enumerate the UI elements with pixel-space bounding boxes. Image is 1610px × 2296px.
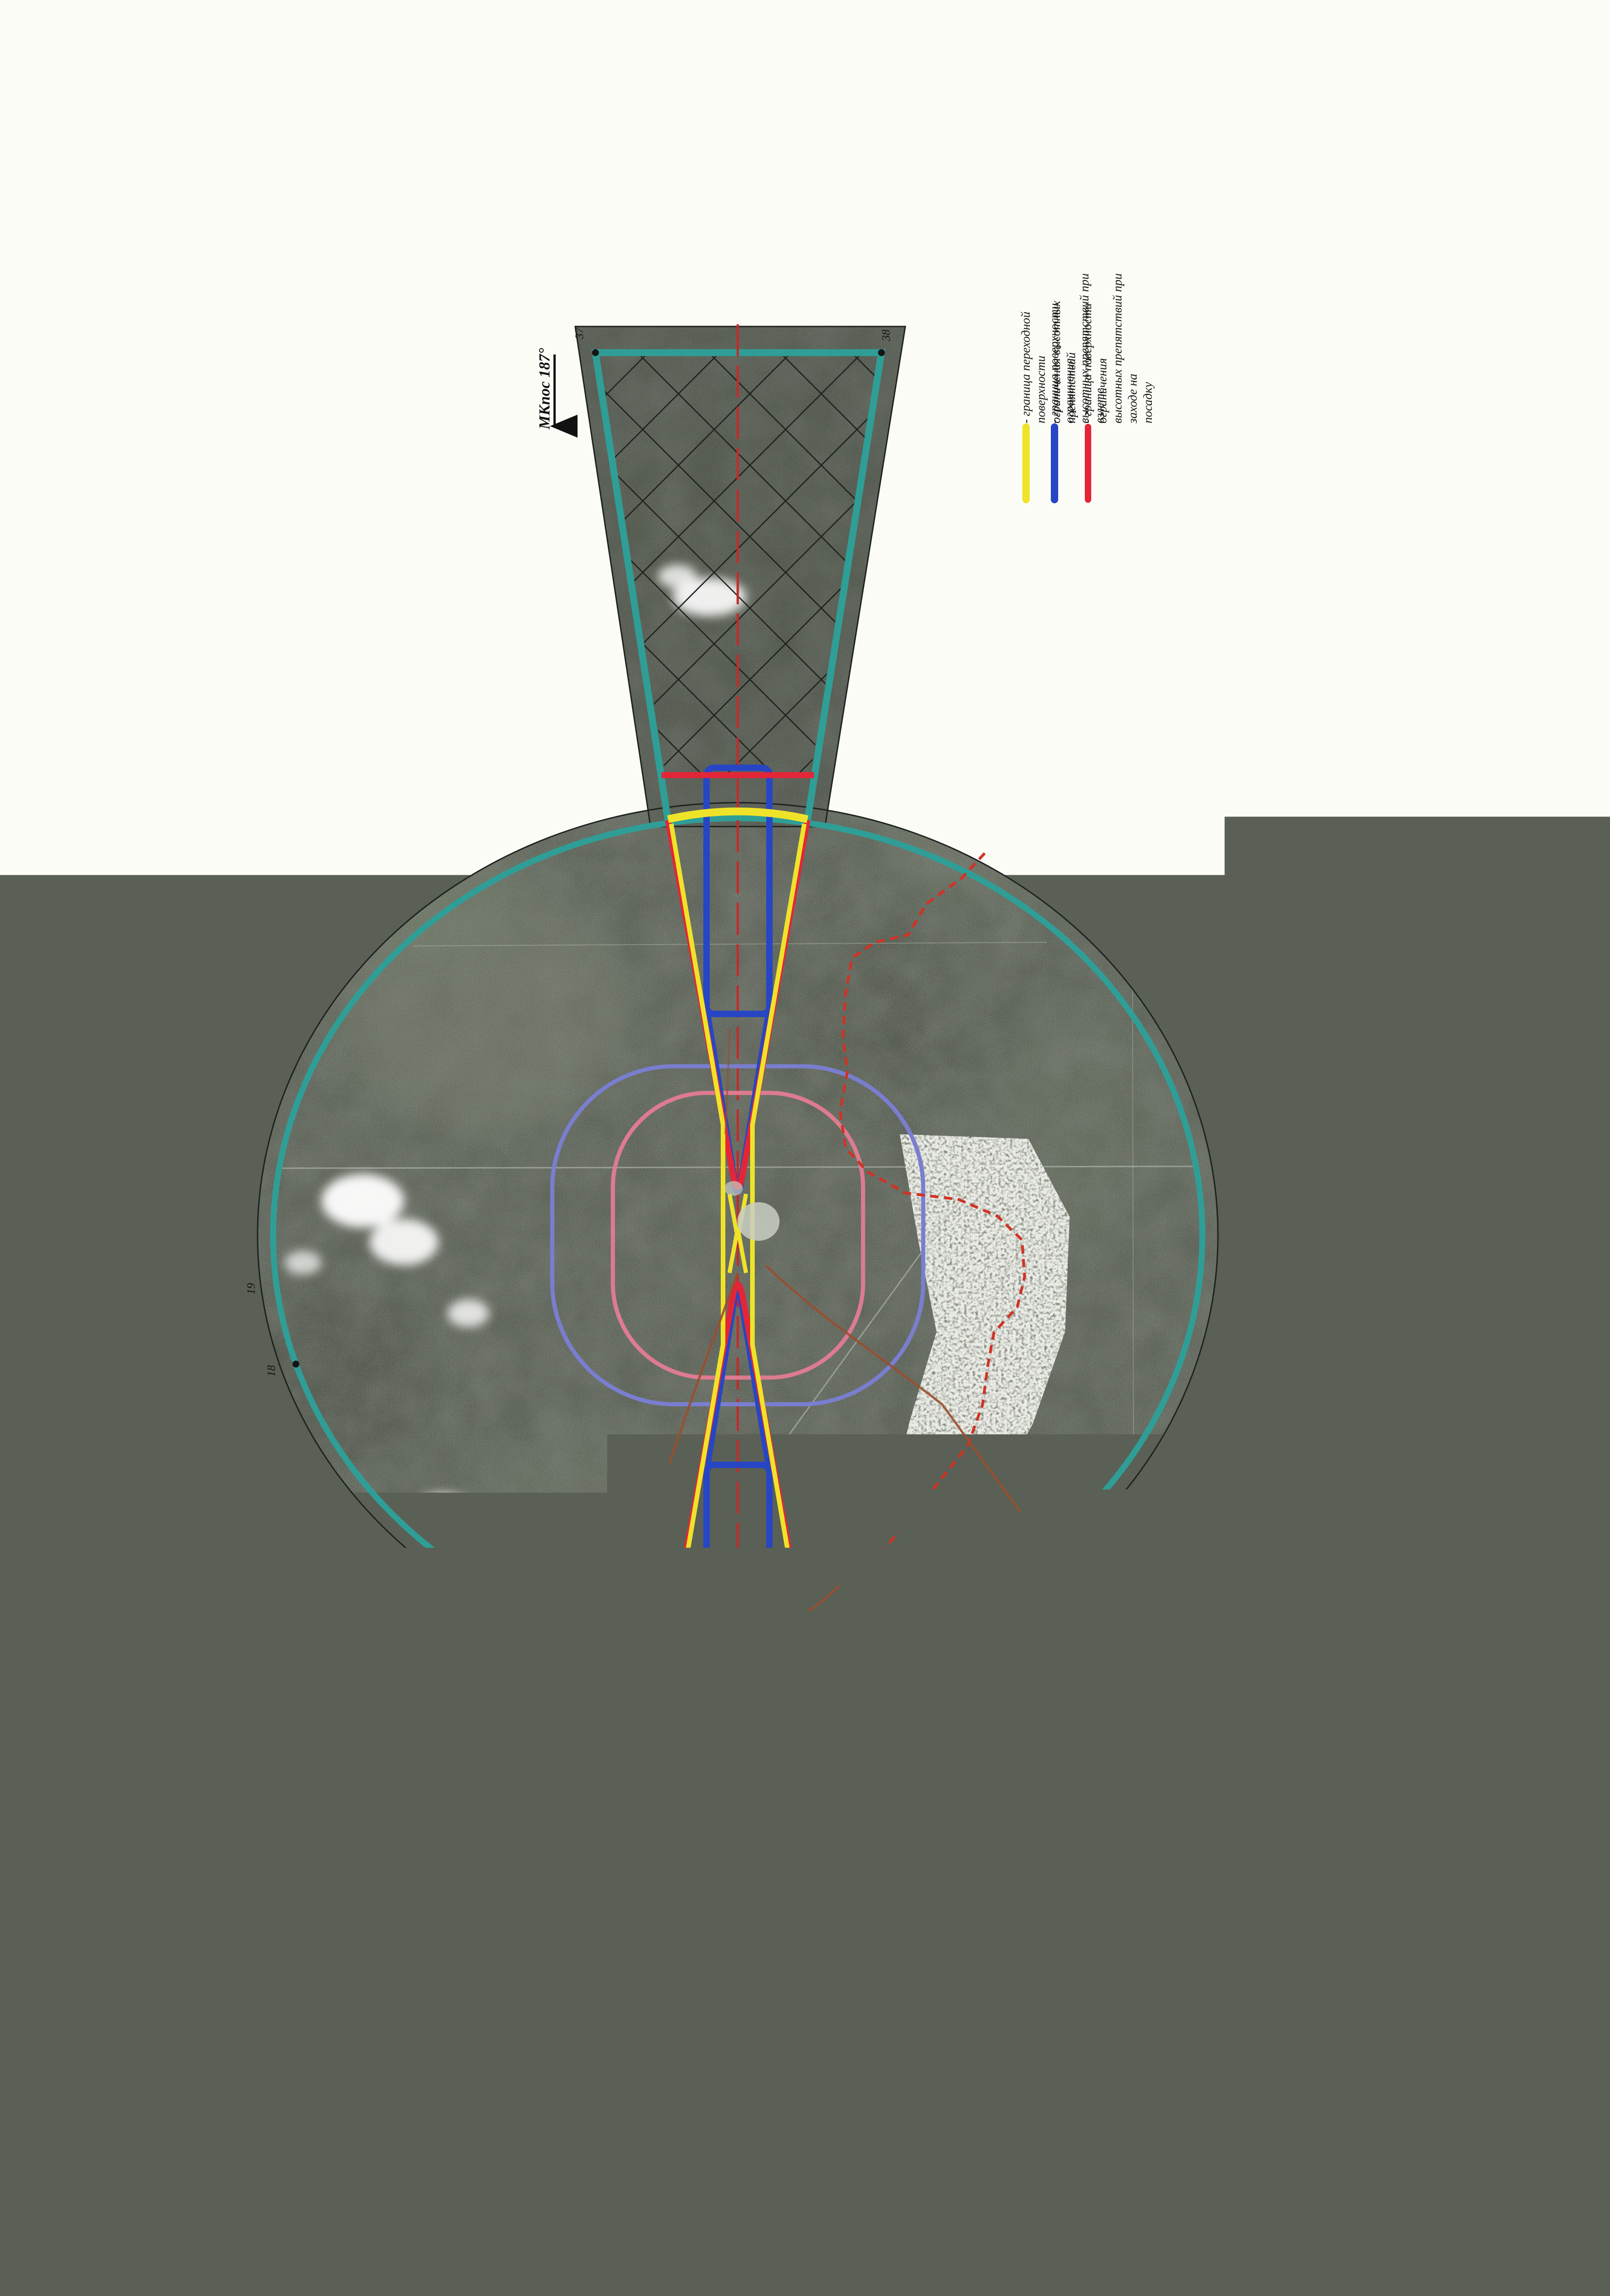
legend-entry-subzone: - граница третьей подзоны с номером хара… (1021, 575, 1051, 740)
document-page: 48514920191837383640372274 197 Схема 4.1… (0, 0, 1610, 2296)
boundary-point-dot (568, 843, 575, 850)
boundary-point-dot (590, 2110, 597, 2117)
region-label-south: Сургутский район Ханты-Мансийского АО (961, 1449, 991, 1587)
boundary-point-dot (878, 349, 885, 356)
boundary-point-dot (1095, 1494, 1102, 1501)
boundary-point-dot (273, 1283, 280, 1289)
boundary-point-dot (854, 1635, 861, 1642)
legend-text: посадку (1140, 240, 1156, 423)
boundary-point-dot (271, 1203, 278, 1210)
boundary-point-dot (1189, 1318, 1195, 1325)
runway (735, 1201, 741, 1270)
region-label-west: Пуровский район Ямало-Ненецкого АО (487, 1317, 501, 1530)
legend-text: - граница внутренней горизонтальной (1049, 501, 1065, 740)
boundary-point-number: 2 (568, 2131, 580, 2137)
boundary-point-dot (286, 1124, 292, 1131)
boundary-point-dot (345, 1005, 352, 1012)
boundary-point-dot (665, 1648, 672, 1655)
boundary-point-dot (901, 843, 908, 850)
boundary-point-dot (481, 1581, 488, 1588)
boundary-point-dot (423, 1542, 430, 1548)
airport-mark1 (718, 1202, 723, 1214)
legend-text: - граница поверхности ограничения (1047, 249, 1077, 423)
boundary-point-dot (1198, 1254, 1205, 1261)
boundary-point-dot (1159, 1062, 1166, 1069)
boundary-point-number: 40 (811, 802, 824, 814)
mk-label-top: МКпос 187° (536, 348, 554, 429)
boundary-point-dot (592, 349, 599, 356)
scheme-drawing: 48514920191837383640372274 (0, 0, 1610, 2296)
boundary-point-number: 48 (1054, 1555, 1066, 1567)
boundary-point-dot (804, 1648, 811, 1655)
legend-text: - граница поверхности ограничения (1080, 240, 1110, 423)
boundary-point-number: 36 (644, 801, 656, 814)
legend-subzone-point-dot (1025, 777, 1032, 784)
legend-entry-approach: - граница поверхности ограничения высотн… (1080, 240, 1156, 423)
boundary-point-dot (502, 871, 509, 878)
boundary-point-dot (862, 2110, 869, 2117)
boundary-point-dot (310, 1062, 317, 1069)
legend-text: - граница третьей подзоны с (1021, 575, 1036, 740)
boundary-point-dot (804, 817, 811, 824)
boundary-point-dot (1027, 908, 1033, 915)
boundary-point-dot (638, 824, 645, 831)
boundary-point-number: 51 (993, 1598, 1005, 1609)
page-number: 197 (39, 1186, 64, 1218)
boundary-point-dot (373, 1494, 380, 1501)
boundary-point-dot (442, 908, 449, 915)
boundary-point-dot (545, 1613, 552, 1620)
boundary-point-dot (614, 1635, 621, 1642)
boundary-point-dot (967, 871, 974, 878)
boundary-point-number: 20 (243, 1199, 255, 1210)
region-south-line1: Сургутский район (961, 1449, 976, 1587)
legend-text: - граница конической поверхности (1114, 547, 1129, 740)
boundary-point-number: 3 (642, 1636, 655, 1642)
legend-entry-conical: - граница конической поверхности огранич… (1114, 547, 1159, 740)
boundary-point-dot (292, 1361, 299, 1367)
boundary-point-dot (389, 953, 396, 960)
city-label: г. Ноябрьск (848, 949, 862, 1009)
region-south-line2: Ханты-Мансийского АО (976, 1449, 991, 1587)
boundary-point-dot (1196, 1188, 1203, 1195)
boundary-point-dot (1183, 1124, 1190, 1131)
apron-light-patch2 (724, 1181, 743, 1196)
boundary-point-dot (1168, 1381, 1175, 1388)
boundary-point-dot (923, 1613, 930, 1620)
page-title: Схема 4.1 (151, 1085, 179, 1196)
boundary-point-number: 37 (573, 327, 586, 340)
boundary-point-dot (1045, 1542, 1052, 1548)
boundary-point-number: 38 (880, 329, 892, 342)
boundary-point-dot (332, 1441, 339, 1447)
boundary-point-number: 74 (864, 2128, 877, 2139)
boundary-point-dot (1124, 1005, 1131, 1012)
boundary-point-number: 72 (812, 1633, 825, 1644)
airport-mark2 (718, 1245, 723, 1257)
legend-text: ограничения высотных препятствий (1129, 547, 1159, 740)
boundary-point-number: 18 (265, 1365, 278, 1377)
legend-text: - граница внешней горизонтальной поверхн… (1081, 492, 1111, 740)
boundary-point-dot (1080, 953, 1087, 960)
boundary-point-number: 49 (926, 1630, 938, 1642)
mk-label-bottom: МКпос 007° (543, 2036, 560, 2117)
legend-text: высотных препятствий при заходе на (1110, 240, 1140, 423)
boundary-point-dot (1137, 1441, 1144, 1447)
legend-text: - граница переходной поверхности (1018, 249, 1049, 423)
boundary-point-dot (831, 824, 838, 831)
boundary-point-dot (665, 817, 672, 824)
boundary-point-number: 19 (245, 1283, 258, 1295)
